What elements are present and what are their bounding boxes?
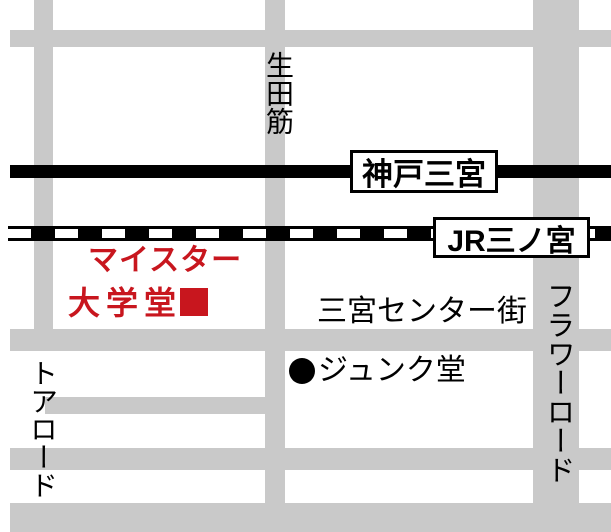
road-horizontal-lower	[10, 448, 611, 470]
road-horizontal-centergai	[10, 329, 611, 351]
street-label-flower-road: フラワーロード	[543, 281, 572, 484]
poi-shop-name-line2: 大学堂	[68, 286, 242, 319]
station-label-jr-sannomiya-text: JR三ノ宮	[447, 216, 575, 260]
hankyu-kobe-sannomiya-line	[10, 165, 611, 178]
station-label-kobe-sannomiya-text: 神戸三宮	[362, 149, 486, 194]
street-label-sannomiya-center-gai: 三宮センター街	[317, 297, 527, 327]
poi-shop-meister-daigakudo: マイスター 大学堂	[68, 246, 242, 319]
shop-marker-square-icon	[180, 288, 208, 316]
poi-junkudo: ジュンク堂	[289, 356, 466, 386]
street-label-tor-road: トアロード	[28, 359, 56, 499]
poi-shop-name-line1: マイスター	[88, 246, 242, 276]
station-label-jr-sannomiya: JR三ノ宮	[433, 217, 590, 258]
road-horizontal-side-street	[45, 397, 285, 414]
street-label-ikuta-suji: 生田筋	[264, 51, 292, 135]
road-horizontal-bottom	[10, 503, 611, 532]
access-map: 神戸三宮 JR三ノ宮 生田筋 トアロード フラワーロード 三宮センター街 マイス…	[0, 0, 611, 532]
road-horizontal-top	[10, 30, 611, 47]
poi-junkudo-label: ジュンク堂	[318, 356, 466, 386]
station-label-kobe-sannomiya: 神戸三宮	[350, 150, 498, 193]
junkudo-marker-dot-icon	[289, 358, 315, 384]
